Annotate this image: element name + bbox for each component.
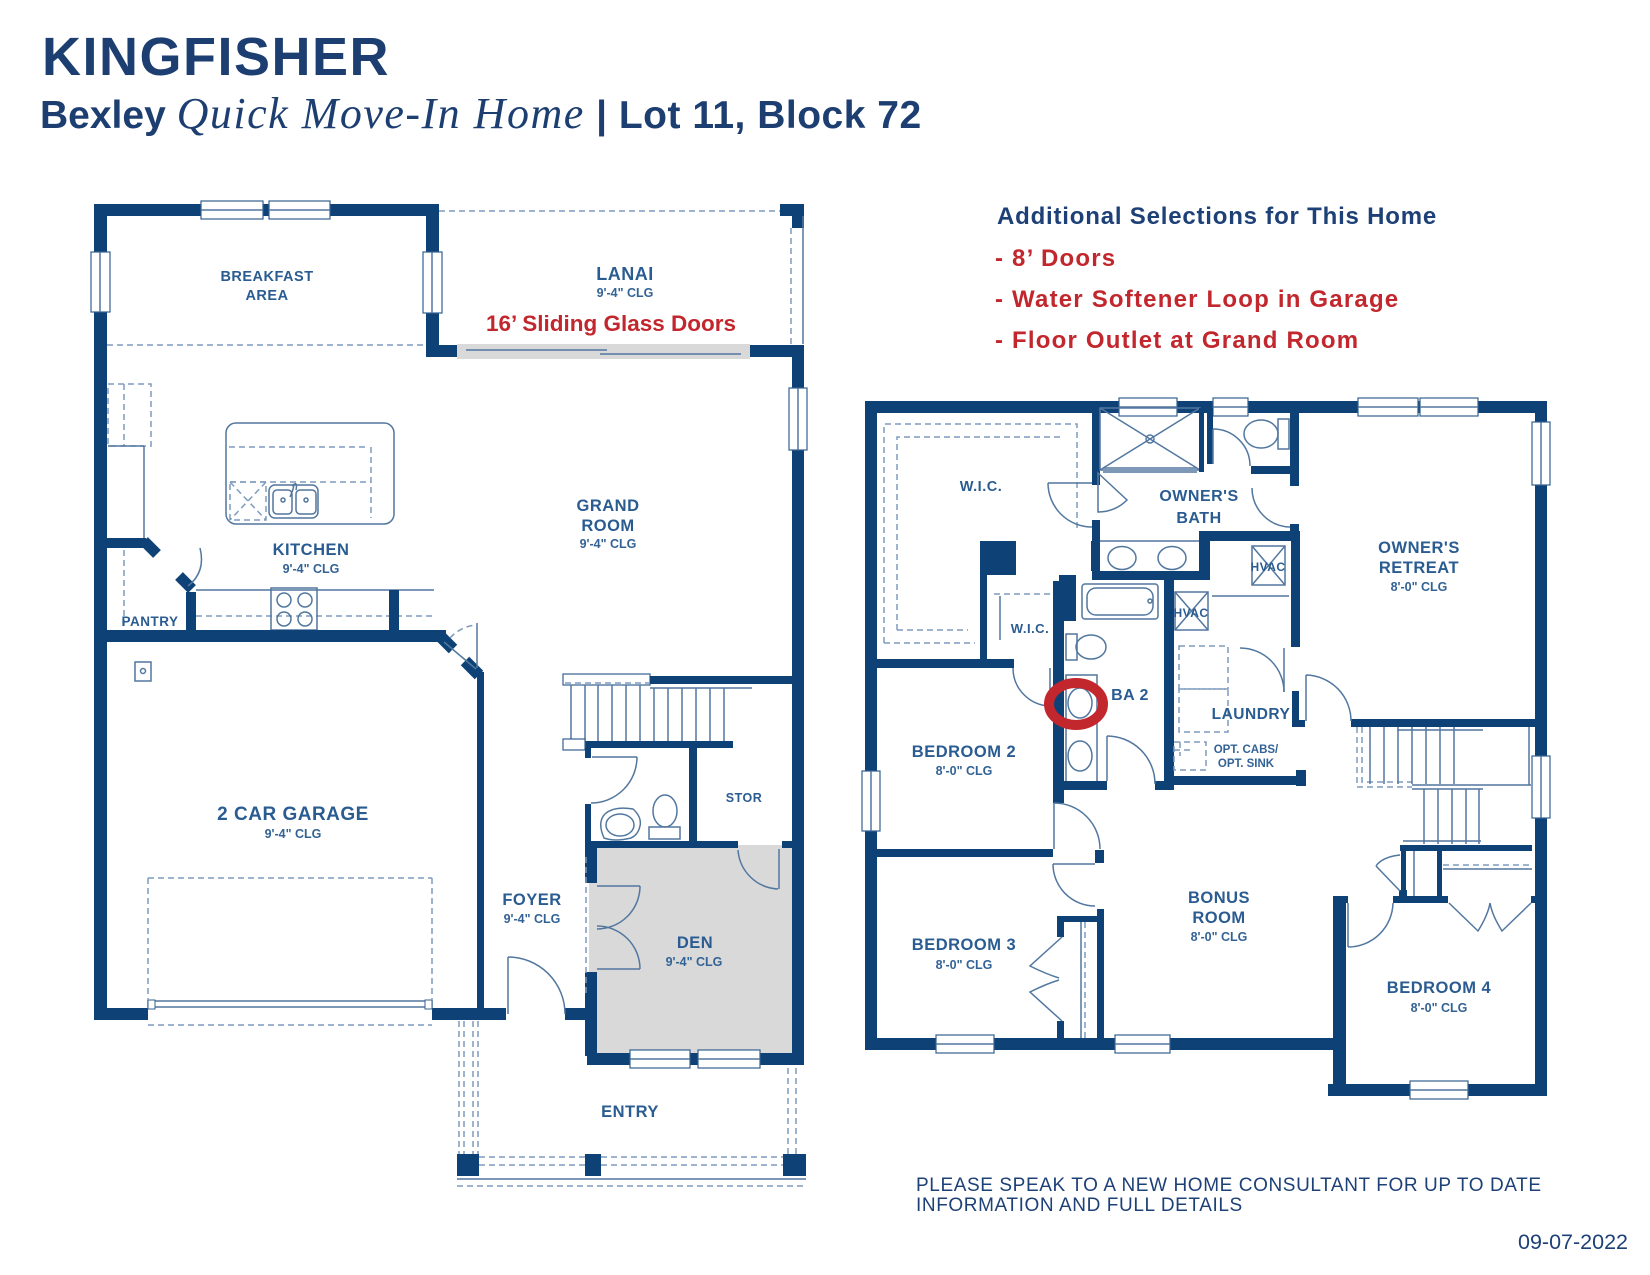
svg-text:9'-4" CLG: 9'-4" CLG: [265, 827, 322, 841]
svg-text:BA 2: BA 2: [1111, 687, 1149, 704]
svg-text:LAUNDRY: LAUNDRY: [1212, 706, 1291, 723]
svg-text:- Water Softener Loop in Garag: - Water Softener Loop in Garage: [995, 286, 1399, 313]
svg-text:GRAND: GRAND: [577, 497, 640, 515]
svg-text:- 8’ Doors: - 8’ Doors: [995, 245, 1116, 272]
svg-text:BEDROOM 3: BEDROOM 3: [912, 936, 1016, 954]
svg-text:8'-0" CLG: 8'-0" CLG: [936, 958, 993, 972]
svg-text:Additional Selections for This: Additional Selections for This Home: [997, 203, 1437, 230]
svg-text:BREAKFAST: BREAKFAST: [220, 269, 313, 285]
svg-text:16’ Sliding Glass Doors: 16’ Sliding Glass Doors: [486, 311, 736, 336]
svg-text:BONUS: BONUS: [1188, 889, 1250, 907]
svg-text:9'-4" CLG: 9'-4" CLG: [504, 912, 561, 926]
svg-text:AREA: AREA: [245, 288, 288, 304]
svg-text:HVAC: HVAC: [1250, 560, 1285, 574]
svg-text:8'-0" CLG: 8'-0" CLG: [936, 764, 993, 778]
svg-text:ENTRY: ENTRY: [601, 1103, 659, 1121]
svg-text:OPT. CABS/: OPT. CABS/: [1214, 744, 1279, 756]
svg-text:LANAI: LANAI: [596, 264, 654, 284]
svg-text:RETREAT: RETREAT: [1379, 559, 1459, 577]
svg-text:HVAC: HVAC: [1173, 606, 1208, 620]
svg-text:Bexley Quick Move-In Home |: Bexley Quick Move-In Home | Lot 11, Bloc…: [40, 89, 922, 138]
svg-text:BEDROOM 2: BEDROOM 2: [912, 743, 1016, 761]
svg-text:PLEASE SPEAK TO A NEW HOME CON: PLEASE SPEAK TO A NEW HOME CONSULTANT FO…: [916, 1175, 1542, 1196]
svg-text:BEDROOM 4: BEDROOM 4: [1387, 979, 1492, 997]
svg-text:09-07-2022: 09-07-2022: [1518, 1230, 1628, 1254]
svg-text:FOYER: FOYER: [502, 891, 561, 909]
svg-text:9'-4" CLG: 9'-4" CLG: [580, 537, 637, 551]
svg-text:8'-0" CLG: 8'-0" CLG: [1391, 580, 1448, 594]
svg-text:9'-4" CLG: 9'-4" CLG: [283, 562, 340, 576]
svg-text:ROOM: ROOM: [1192, 909, 1245, 927]
svg-text:8'-0" CLG: 8'-0" CLG: [1411, 1001, 1468, 1015]
svg-text:9'-4" CLG: 9'-4" CLG: [666, 955, 723, 969]
svg-text:8'-0" CLG: 8'-0" CLG: [1191, 930, 1248, 944]
svg-text:KINGFISHER: KINGFISHER: [42, 27, 390, 87]
svg-text:OWNER'S: OWNER'S: [1378, 539, 1460, 557]
svg-text:BATH: BATH: [1176, 510, 1221, 527]
svg-text:INFORMATION AND FULL DETAILS: INFORMATION AND FULL DETAILS: [916, 1195, 1243, 1216]
svg-text:STOR: STOR: [726, 791, 763, 805]
svg-text:OPT. SINK: OPT. SINK: [1218, 758, 1275, 770]
svg-text:KITCHEN: KITCHEN: [273, 541, 350, 559]
svg-text:W.I.C.: W.I.C.: [960, 479, 1002, 495]
svg-text:9'-4" CLG: 9'-4" CLG: [597, 286, 654, 300]
svg-text:ROOM: ROOM: [581, 517, 634, 535]
svg-text:- Floor Outlet at Grand Room: - Floor Outlet at Grand Room: [995, 327, 1359, 354]
svg-text:2 CAR GARAGE: 2 CAR GARAGE: [217, 804, 369, 825]
svg-text:W.I.C.: W.I.C.: [1011, 621, 1049, 636]
svg-text:DEN: DEN: [677, 934, 713, 952]
svg-text:PANTRY: PANTRY: [122, 614, 179, 629]
svg-text:OWNER'S: OWNER'S: [1159, 488, 1238, 505]
